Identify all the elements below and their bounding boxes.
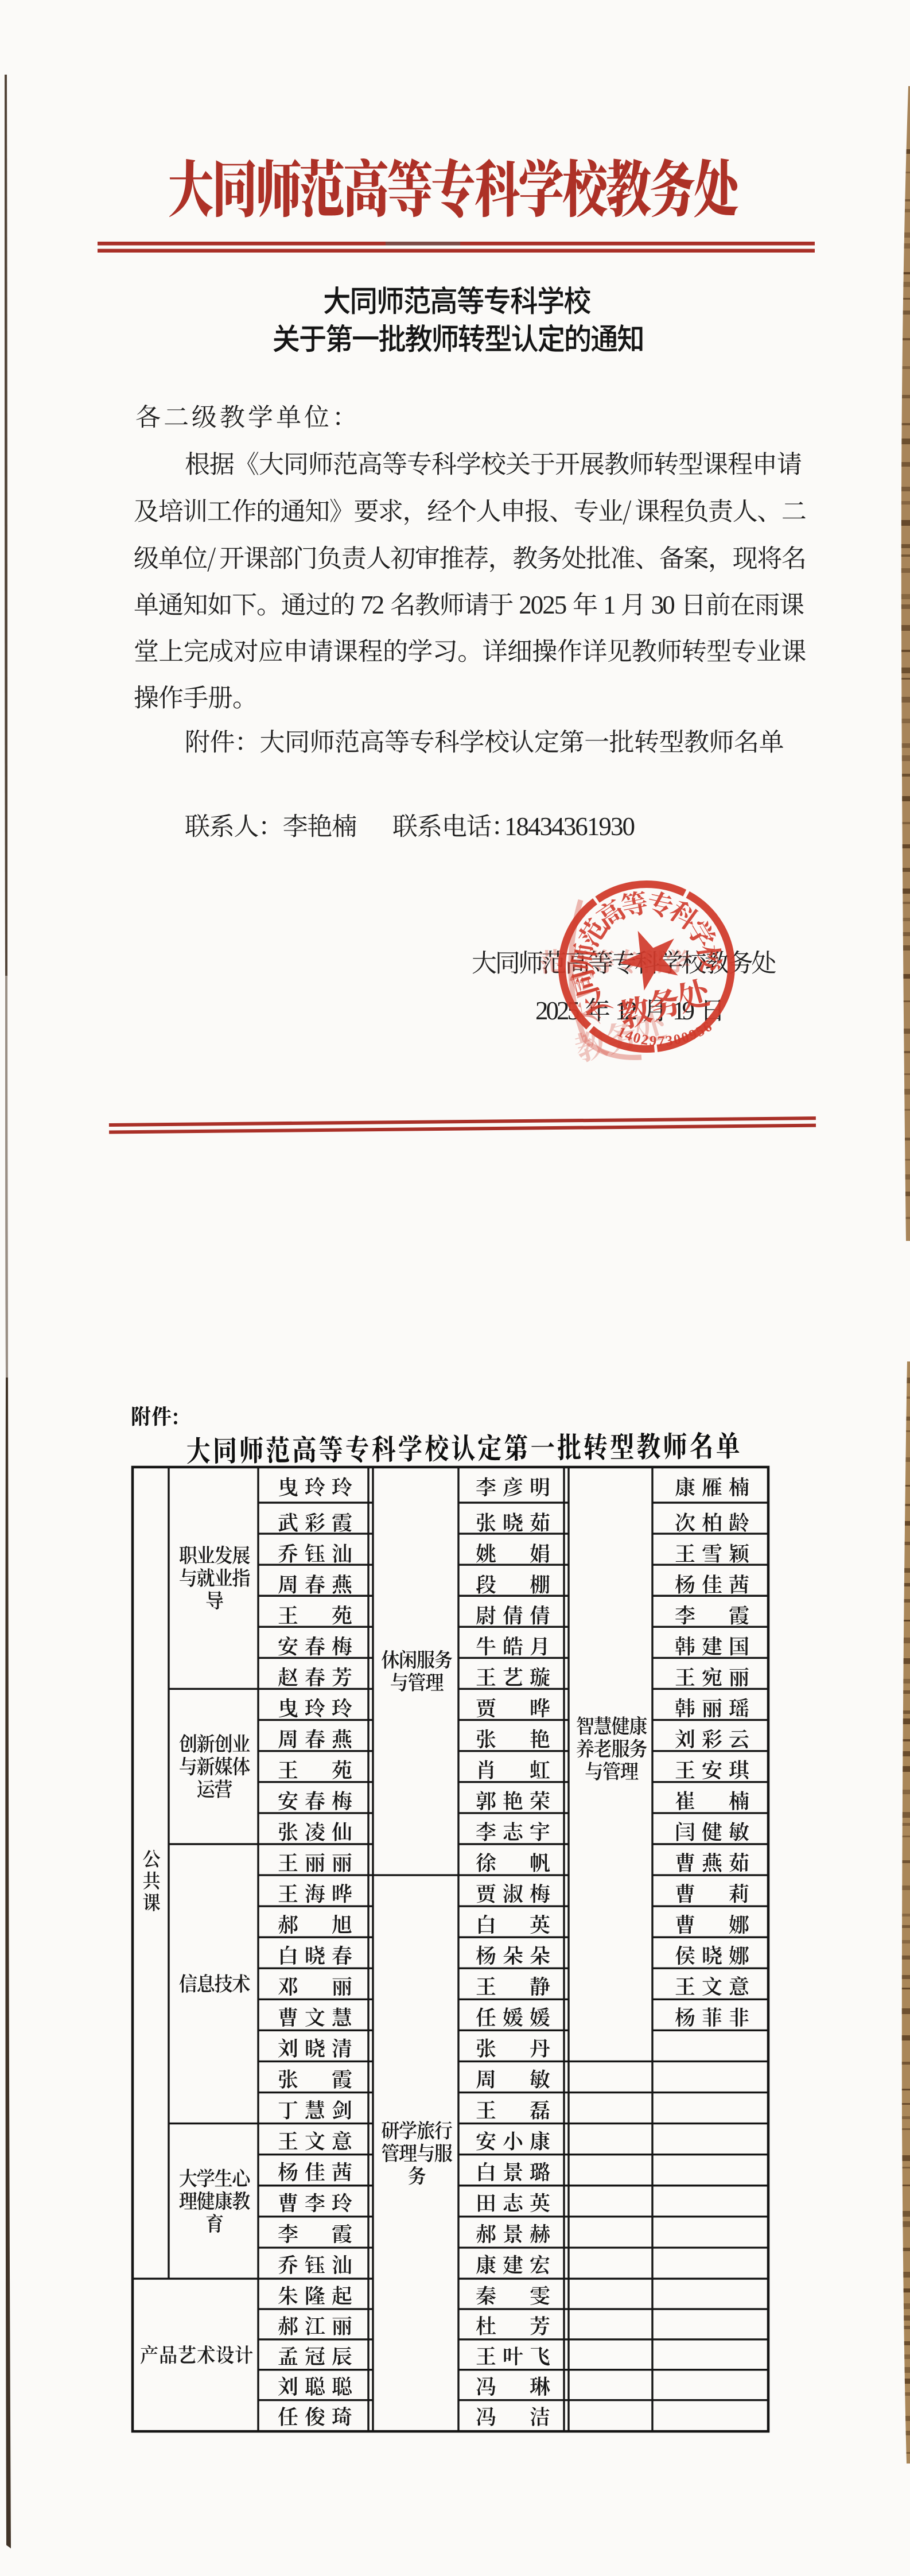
svg-text:1: 1 bbox=[603, 591, 616, 619]
svg-text:2025: 2025 bbox=[519, 591, 567, 619]
svg-text:30: 30 bbox=[651, 591, 675, 619]
svg-text:18434361930: 18434361930 bbox=[504, 812, 635, 841]
svg-text:7: 7 bbox=[658, 1034, 665, 1049]
svg-text:9: 9 bbox=[649, 1033, 658, 1049]
svg-text:72: 72 bbox=[360, 591, 384, 619]
